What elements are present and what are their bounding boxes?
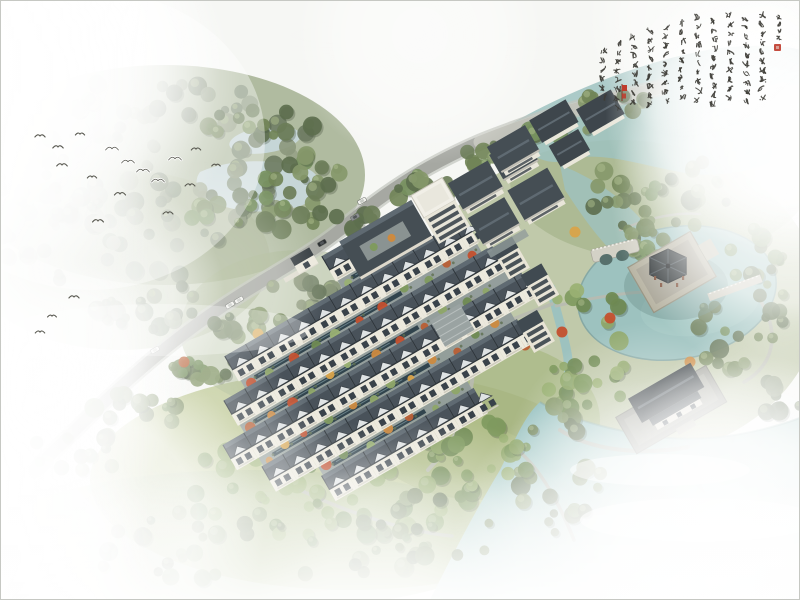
seal-stamp (622, 85, 627, 91)
autumn-tree (605, 313, 616, 324)
rendering-frame (0, 0, 800, 600)
autumn-tree (570, 227, 581, 238)
aerial-rendering-canvas (0, 0, 800, 600)
autumn-tree (557, 327, 568, 338)
